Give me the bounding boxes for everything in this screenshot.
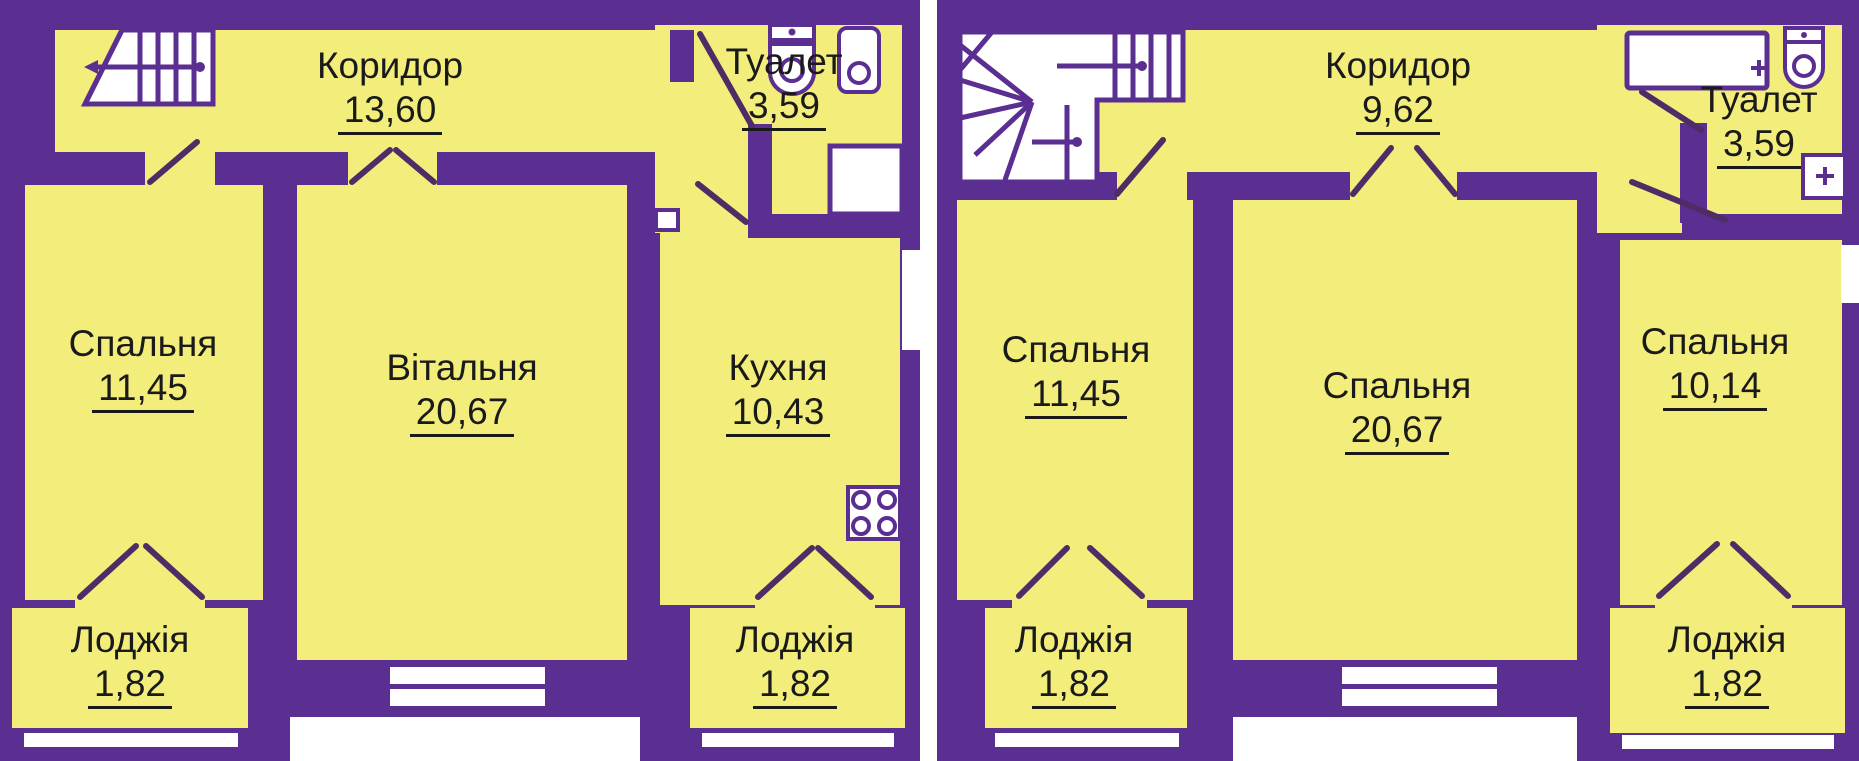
room-area-value: 1,82 [88, 662, 172, 710]
room-area: 1,82 [1607, 662, 1847, 710]
room-name: Кухня [658, 346, 898, 390]
window [995, 733, 1179, 747]
window [1342, 689, 1497, 706]
window [902, 250, 920, 350]
shower-tray-icon [830, 146, 902, 214]
window [390, 689, 545, 706]
room-name: Спальня [956, 328, 1196, 372]
room-name: Лоджія [10, 618, 250, 662]
room-name: Туалет [664, 40, 904, 84]
room-area: 10,43 [658, 390, 898, 438]
room-label-bedroom: Спальня 11,45 [23, 322, 263, 413]
room-area-value: 11,45 [92, 366, 194, 414]
room-area: 3,59 [1649, 122, 1859, 170]
room-area-value: 3,59 [1717, 122, 1801, 170]
room-area: 20,67 [342, 390, 582, 438]
room-area-value: 1,82 [1032, 662, 1116, 710]
room-area-value: 1,82 [1685, 662, 1769, 710]
room-label-loggia-right: Лоджія 1,82 [1607, 618, 1847, 709]
window [390, 667, 545, 684]
room-name: Коридор [1278, 44, 1518, 88]
room-area: 1,82 [10, 662, 250, 710]
floor-plan-2: Коридор 9,62 Туалет 3,59 Спальня 11,45 С… [937, 0, 1859, 761]
room-area-value: 13,60 [338, 88, 443, 136]
room-name: Спальня [23, 322, 263, 366]
room-area: 9,62 [1278, 88, 1518, 136]
room-area-value: 20,67 [1345, 408, 1450, 456]
room-label-bedroom-left: Спальня 11,45 [956, 328, 1196, 419]
floorplans-canvas: Коридор 13,60 Туалет 3,59 Спальня 11,45 … [0, 0, 1859, 761]
room-name: Спальня [1595, 320, 1835, 364]
room-name: Лоджія [1607, 618, 1847, 662]
room-label-toilet: Туалет 3,59 [1649, 78, 1859, 169]
room-label-loggia-right: Лоджія 1,82 [675, 618, 915, 709]
room-label-corridor: Коридор 13,60 [270, 44, 510, 135]
room-name: Вітальня [342, 346, 582, 390]
room-area: 3,59 [664, 84, 904, 132]
room-label-corridor: Коридор 9,62 [1278, 44, 1518, 135]
room-area: 13,60 [270, 88, 510, 136]
room-label-loggia-left: Лоджія 1,82 [10, 618, 250, 709]
room-area-value: 20,67 [410, 390, 515, 438]
room-area-value: 1,82 [753, 662, 837, 710]
room-name: Лоджія [675, 618, 915, 662]
room-area-value: 10,14 [1663, 364, 1768, 412]
room-area: 1,82 [954, 662, 1194, 710]
room-label-bedroom-middle: Спальня 20,67 [1277, 364, 1517, 455]
room-label-kitchen: Кухня 10,43 [658, 346, 898, 437]
room-area: 11,45 [23, 366, 263, 414]
floor-plan-1: Коридор 13,60 Туалет 3,59 Спальня 11,45 … [0, 0, 920, 761]
window [24, 733, 238, 747]
room-label-toilet: Туалет 3,59 [664, 40, 904, 131]
room-bedroom-right [1620, 240, 1842, 605]
room-area-value: 3,59 [742, 84, 826, 132]
room-name: Коридор [270, 44, 510, 88]
room-label-living-room: Вітальня 20,67 [342, 346, 582, 437]
room-area-value: 10,43 [726, 390, 831, 438]
room-area: 1,82 [675, 662, 915, 710]
stove-burners-icon [848, 487, 900, 539]
room-name: Спальня [1277, 364, 1517, 408]
room-area: 10,14 [1595, 364, 1835, 412]
room-name: Туалет [1649, 78, 1859, 122]
room-label-loggia-left: Лоджія 1,82 [954, 618, 1194, 709]
room-area: 11,45 [956, 372, 1196, 420]
room-label-bedroom-right: Спальня 10,14 [1595, 320, 1835, 411]
room-area-value: 11,45 [1025, 372, 1127, 420]
vent-shaft-icon [656, 210, 678, 230]
room-name: Лоджія [954, 618, 1194, 662]
window [1841, 245, 1859, 303]
window [1342, 667, 1497, 684]
window [702, 733, 894, 747]
room-area-value: 9,62 [1356, 88, 1440, 136]
room-area: 20,67 [1277, 408, 1517, 456]
window [1622, 735, 1834, 749]
